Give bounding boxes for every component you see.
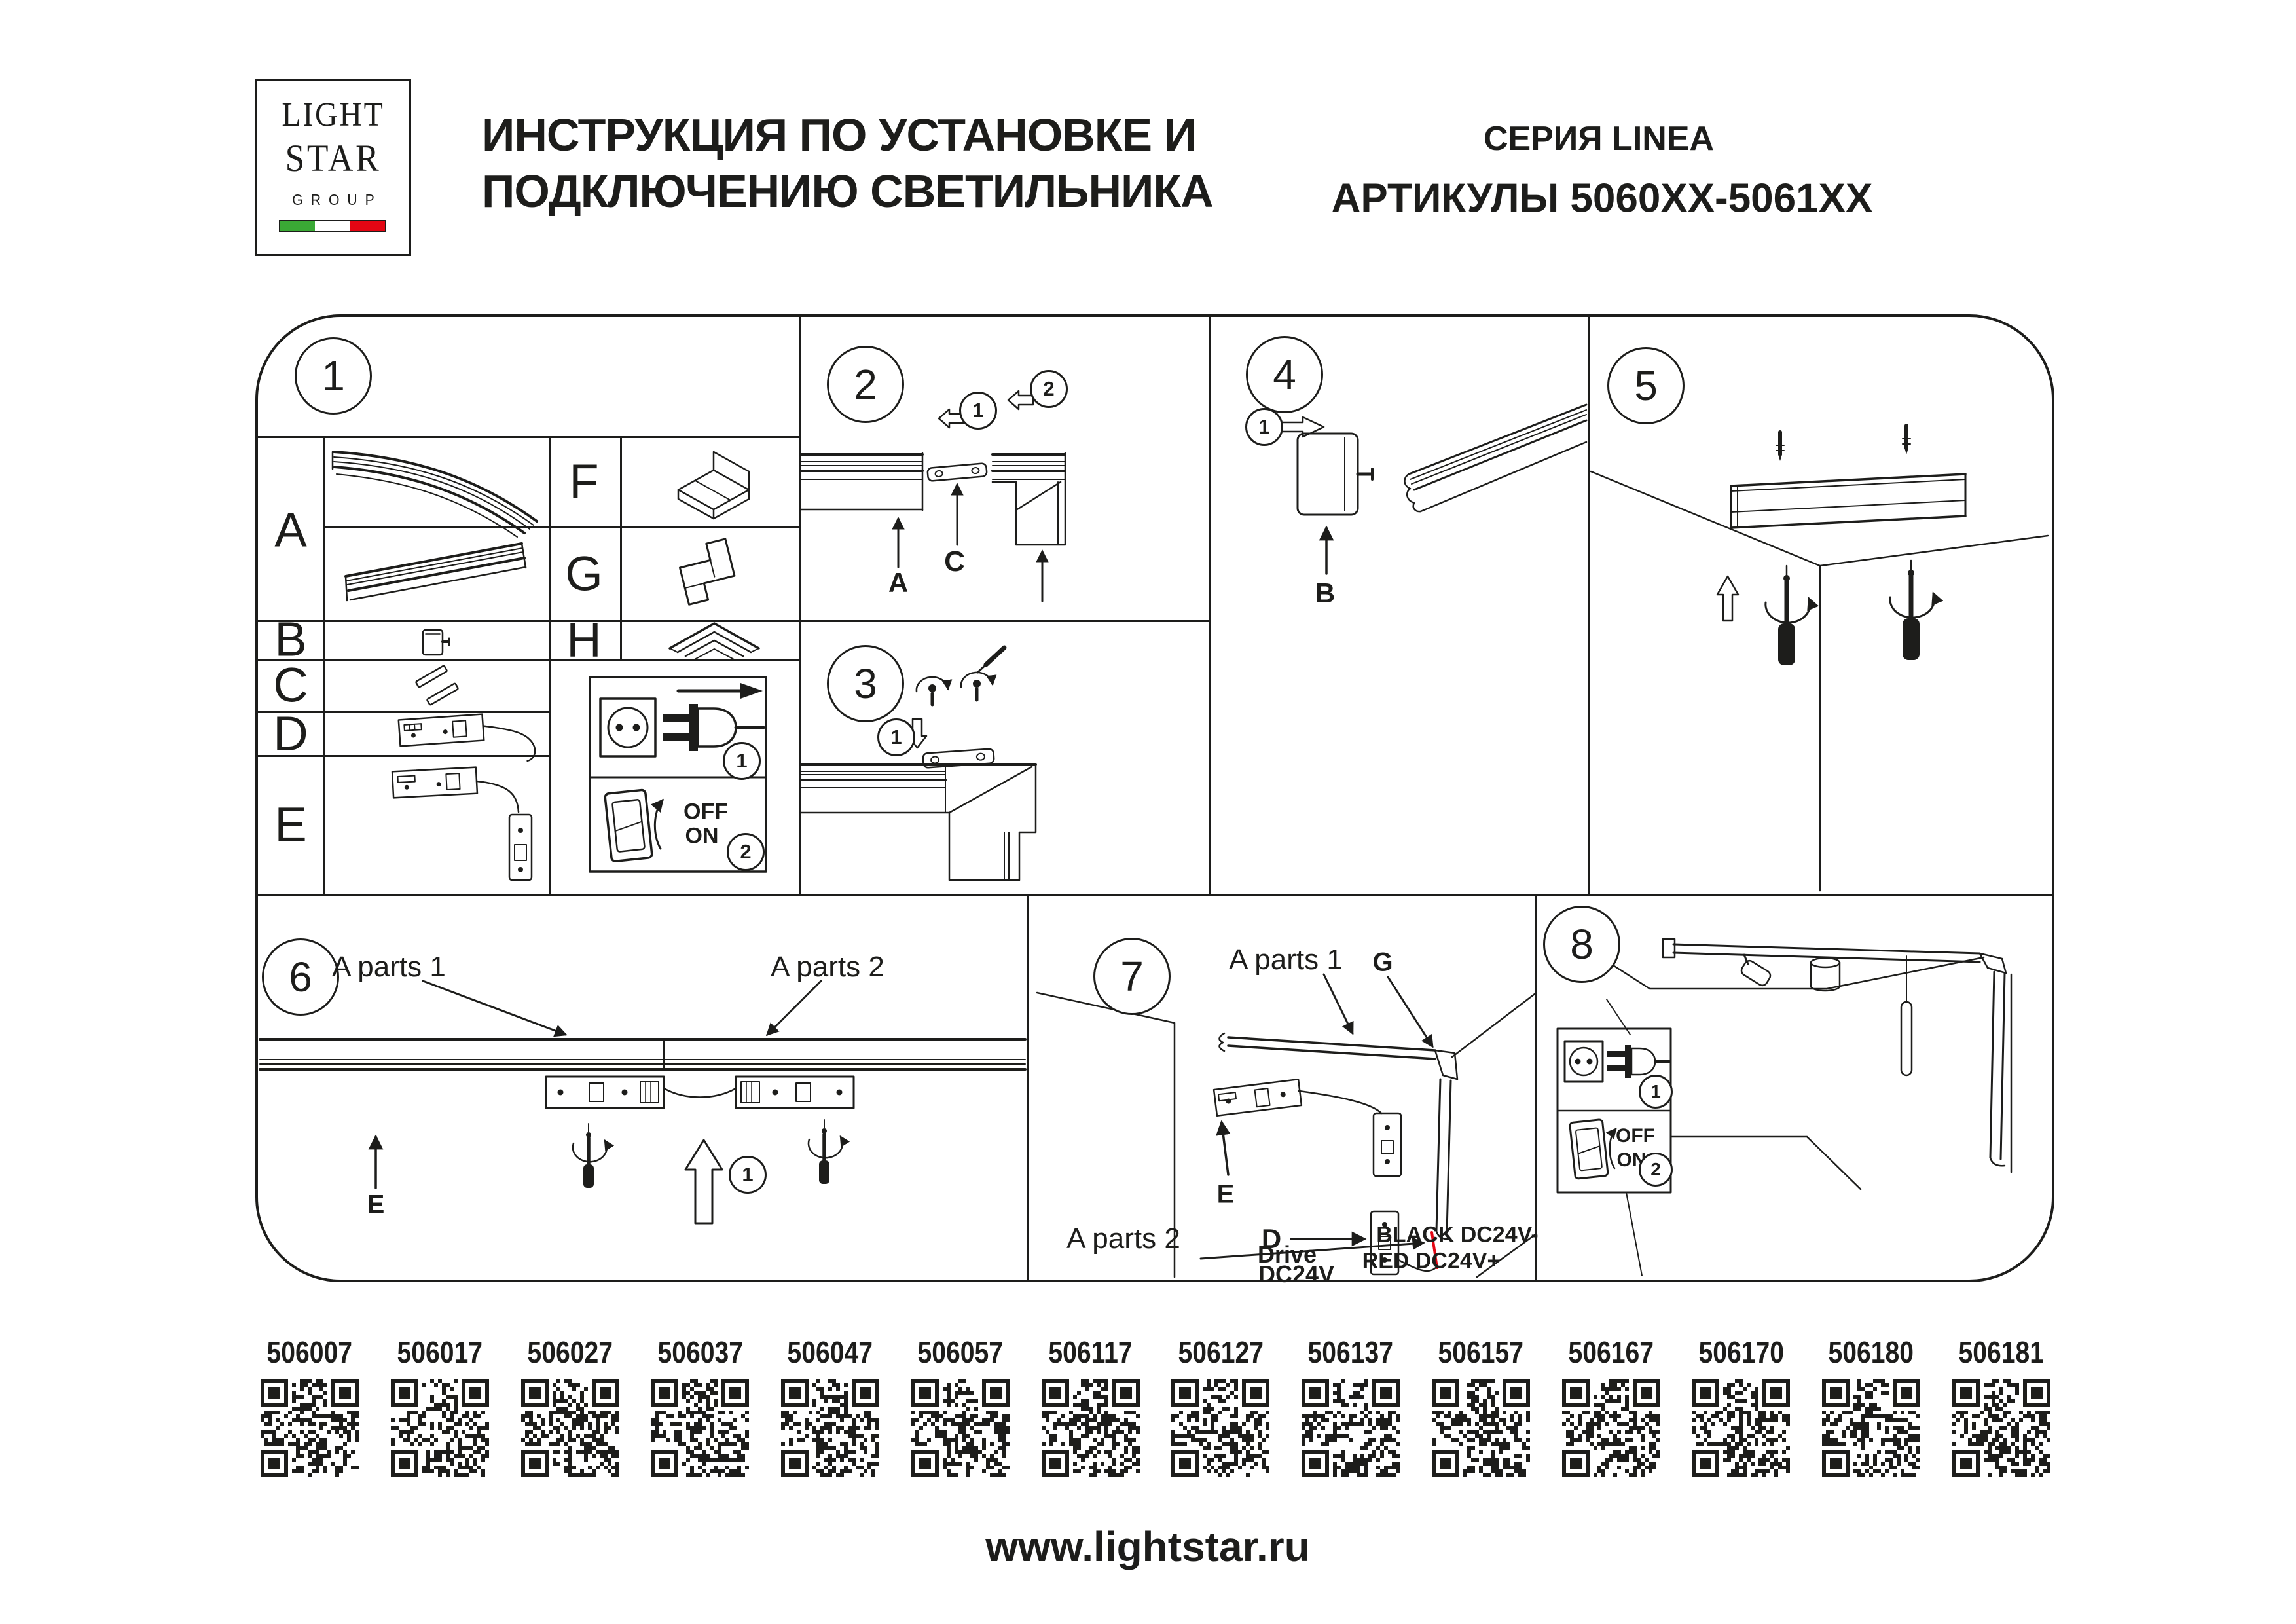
panel-2-number: 2	[827, 346, 904, 423]
qr-item: 506181	[1947, 1335, 2056, 1477]
p4-step-1-badge: 1	[1245, 408, 1283, 446]
panel-4-number: 4	[1246, 336, 1323, 413]
part-f-drawing	[678, 452, 749, 519]
qr-item: 506027	[516, 1335, 625, 1477]
qr-code	[1822, 1379, 1920, 1477]
screwdriver-icon	[573, 1124, 607, 1188]
qr-code	[521, 1379, 619, 1477]
italian-flag-icon	[279, 220, 386, 232]
diagram-linework	[258, 317, 2052, 1280]
qr-item: 506057	[906, 1335, 1015, 1477]
p2-step-1-badge: 1	[959, 392, 997, 430]
divider-top-bottom-row	[258, 894, 2052, 896]
page-title: ИНСТРУКЦИЯ ПО УСТАНОВКЕ И ПОДКЛЮЧЕНИЮ СВ…	[482, 107, 1213, 219]
part-g-drawing	[676, 539, 738, 604]
flag-red-stripe	[350, 221, 385, 231]
p6-step-1-badge: 1	[729, 1156, 767, 1194]
article-number: 506037	[657, 1335, 742, 1370]
qr-code	[1171, 1379, 1269, 1477]
p1-on-label: ON	[685, 824, 719, 849]
qr-item: 506137	[1296, 1335, 1405, 1477]
panel-1-number: 1	[295, 337, 372, 415]
logo-line-light: LIGHT	[282, 96, 384, 134]
qr-code	[1562, 1379, 1660, 1477]
p8-finished-room-drawing	[1558, 932, 2011, 1276]
part-a-straight-track-drawing	[346, 544, 526, 600]
logo-line-group: GROUP	[284, 191, 382, 209]
p1-off-label: OFF	[683, 800, 728, 825]
qr-code	[651, 1379, 749, 1477]
article-number: 506027	[527, 1335, 612, 1370]
part-b-drawing	[423, 630, 449, 655]
article-number: 506007	[267, 1335, 352, 1370]
part-h-drawing	[670, 623, 759, 660]
p1-label-col-line	[323, 436, 325, 894]
series-label: СЕРИЯ LINEA	[1484, 119, 1714, 158]
qr-code	[1432, 1379, 1530, 1477]
screwdriver-icon	[1890, 561, 1935, 660]
article-number: 506167	[1568, 1335, 1653, 1370]
qr-item: 506017	[386, 1335, 494, 1477]
p8-off-label: OFF	[1616, 1125, 1655, 1147]
screwdriver-icon	[809, 1120, 843, 1184]
p1-row-label-h: H	[566, 612, 601, 668]
part-d-drawing	[399, 710, 536, 769]
qr-item: 506167	[1557, 1335, 1666, 1477]
qr-code	[781, 1379, 879, 1477]
p2-joining-tracks-drawing	[801, 391, 1065, 601]
flag-white-stripe	[315, 221, 350, 231]
divider-p1-p2	[799, 317, 801, 894]
p2-step-2-badge: 2	[1030, 370, 1068, 408]
p8-step-1-badge: 1	[1639, 1075, 1673, 1109]
qr-code	[1302, 1379, 1400, 1477]
lightstar-logo: LIGHT STAR GROUP	[255, 79, 411, 256]
panel-3-number: 3	[827, 645, 904, 722]
qr-item: 506180	[1817, 1335, 1925, 1477]
qr-code	[391, 1379, 489, 1477]
article-number: 506181	[1959, 1335, 2044, 1370]
p7-a-parts-2-label: A parts 2	[1066, 1223, 1180, 1255]
p2-label-c: C	[944, 545, 965, 578]
p7-dc24v-label: DC24V	[1258, 1261, 1334, 1288]
p6-joining-straight-tracks-drawing	[260, 981, 1025, 1223]
part-a-curved-track-drawing	[333, 452, 537, 537]
website-url: www.lightstar.ru	[985, 1522, 1309, 1571]
divider-p6-p7	[1027, 894, 1029, 1280]
p8-step-2-badge: 2	[1639, 1153, 1673, 1187]
p1-row-label-a: A	[274, 502, 306, 558]
qr-code	[911, 1379, 1010, 1477]
p4-label-b: B	[1315, 578, 1335, 609]
qr-item: 506127	[1166, 1335, 1275, 1477]
qr-code	[261, 1379, 359, 1477]
p1-row-label-d: D	[273, 706, 308, 762]
p1-step-1-badge: 1	[723, 742, 761, 780]
p7-wire-black-label: BLACK DC24V-	[1376, 1223, 1538, 1248]
p7-label-e: E	[1217, 1180, 1235, 1209]
instruction-diagram: 1 2 3 4 5 6 7 8 A B C D E F G H OFF ON 1…	[255, 314, 2054, 1282]
p5-ceiling-mount-drawing	[1591, 426, 2048, 891]
divider-p4-p5	[1588, 317, 1590, 894]
screwdriver-icon	[1766, 566, 1810, 665]
part-e-drawing	[392, 767, 532, 880]
p1-mid-col-line	[549, 436, 551, 894]
qr-item: 506157	[1427, 1335, 1535, 1477]
article-number: 506017	[397, 1335, 483, 1370]
article-number: 506127	[1178, 1335, 1263, 1370]
article-number: 506170	[1698, 1335, 1783, 1370]
qr-item: 506037	[646, 1335, 754, 1477]
p1-row-label-c: C	[273, 657, 308, 713]
p1-row-a-split	[323, 526, 799, 528]
p1-header-line	[258, 436, 799, 438]
articles-label: АРТИКУЛЫ 5060XX-5061XX	[1332, 175, 1873, 222]
article-number: 506117	[1048, 1335, 1132, 1370]
p1-right-label-col-line	[620, 436, 622, 659]
title-line-1: ИНСТРУКЦИЯ ПО УСТАНОВКЕ И	[482, 107, 1213, 163]
panel-6-number: 6	[262, 938, 339, 1016]
logo-line-star: STAR	[285, 136, 381, 180]
article-number: 506057	[918, 1335, 1003, 1370]
p6-label-e: E	[367, 1190, 385, 1220]
p6-a-parts-1-label: A parts 1	[332, 951, 446, 984]
p1-row-bc-line	[258, 659, 799, 661]
qr-item: 506170	[1686, 1335, 1795, 1477]
article-number: 506137	[1308, 1335, 1393, 1370]
qr-code	[1042, 1379, 1140, 1477]
p1-row-label-f: F	[569, 454, 598, 509]
qr-code	[1952, 1379, 2050, 1477]
p7-wire-red-label: RED DC24V+	[1362, 1249, 1501, 1274]
qr-item: 506117	[1036, 1335, 1145, 1477]
panel-7-number: 7	[1093, 938, 1171, 1015]
qr-code	[1692, 1379, 1790, 1477]
p1-step-2-badge: 2	[727, 833, 765, 871]
title-line-2: ПОДКЛЮЧЕНИЮ СВЕТИЛЬНИКА	[482, 163, 1213, 219]
qr-item: 506047	[776, 1335, 884, 1477]
part-c-drawing	[416, 665, 458, 705]
p2-label-a: A	[888, 567, 908, 599]
article-number: 506047	[788, 1335, 873, 1370]
p1-row-label-g: G	[565, 546, 603, 602]
article-number: 506157	[1438, 1335, 1523, 1370]
p6-a-parts-2-label: A parts 2	[771, 951, 884, 984]
p7-label-g: G	[1372, 948, 1393, 978]
divider-p2-p4	[1209, 317, 1211, 894]
article-number: 506180	[1829, 1335, 1914, 1370]
p4-end-cap-drawing	[1281, 405, 1586, 574]
panel-8-number: 8	[1543, 906, 1620, 983]
article-qr-row: 506007 506017 506027 506037 506047 50605…	[255, 1335, 2056, 1477]
p1-row-label-e: E	[274, 797, 306, 853]
p3-step-1-badge: 1	[877, 718, 915, 756]
p7-a-parts-1-label: A parts 1	[1229, 944, 1343, 976]
instruction-sheet: LIGHT STAR GROUP ИНСТРУКЦИЯ ПО УСТАНОВКЕ…	[0, 0, 2296, 1624]
flag-green-stripe	[280, 221, 315, 231]
divider-p2-p3	[258, 620, 1211, 622]
panel-5-number: 5	[1607, 347, 1685, 424]
qr-item: 506007	[255, 1335, 364, 1477]
